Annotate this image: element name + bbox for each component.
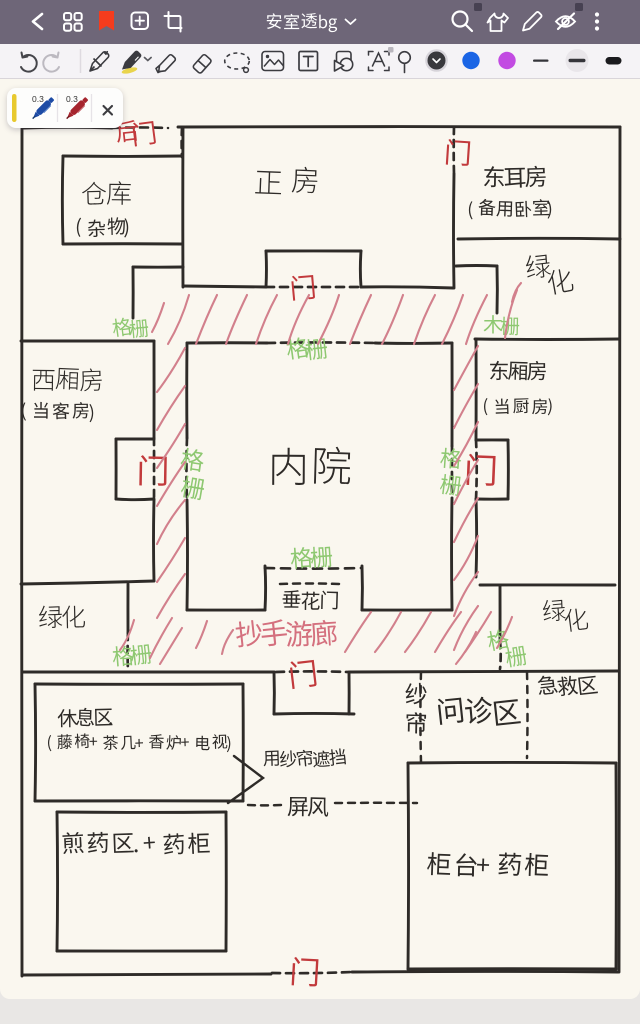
svg-text:0.3: 0.3 — [32, 94, 44, 104]
svg-text:0.3: 0.3 — [66, 94, 78, 104]
